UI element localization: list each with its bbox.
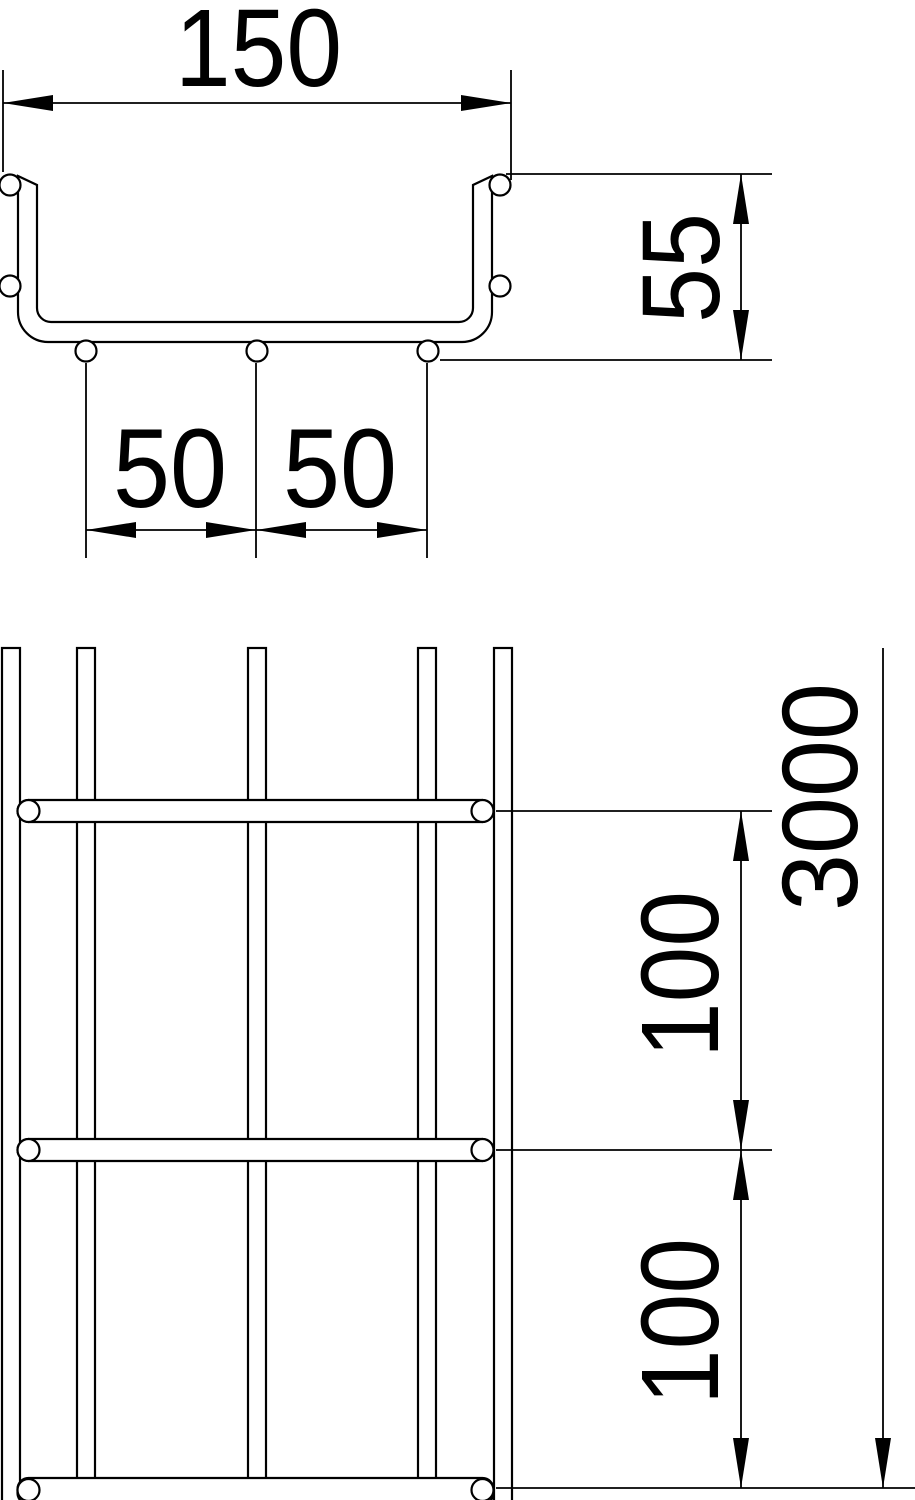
bottom-wire-right <box>418 341 439 362</box>
dimension-rung-pitch-upper-100: 100 <box>496 811 772 1150</box>
rim-wire-right <box>490 175 511 196</box>
side-wire-left <box>0 276 21 297</box>
bottom-wire-left <box>76 341 97 362</box>
plan-view: 100 100 3000 <box>2 648 915 1500</box>
arrowhead-left <box>3 95 53 111</box>
spacing-label-right: 50 <box>283 406 397 531</box>
rung-pitch-upper-label: 100 <box>619 891 742 1058</box>
longitudinal-wire-5 <box>494 648 512 1500</box>
arrowhead-up <box>733 1150 749 1200</box>
dimension-rung-pitch-lower-100: 100 <box>496 1150 915 1488</box>
dimension-wire-spacing-50-50: 50 50 <box>86 363 427 558</box>
longitudinal-wire-1 <box>2 648 20 1500</box>
spacing-label-left: 50 <box>113 406 227 531</box>
longitudinal-wire-2 <box>77 648 95 1500</box>
dimension-width-150: 150 <box>3 0 511 180</box>
arrowhead-down <box>733 1100 749 1150</box>
arrowhead-up <box>733 811 749 861</box>
u-channel-profile <box>18 176 492 342</box>
cross-section-view: 150 55 50 50 <box>0 0 772 558</box>
width-label: 150 <box>175 0 342 110</box>
side-wire-right <box>490 276 511 297</box>
arrowhead-down <box>875 1438 891 1488</box>
cross-rung-2 <box>18 1139 494 1161</box>
mesh-tray-drawing: 150 55 50 50 <box>0 0 915 1500</box>
arrowhead-down <box>733 1438 749 1488</box>
arrowhead-right <box>461 95 511 111</box>
cross-rung-1 <box>18 800 494 822</box>
length-label: 3000 <box>759 683 880 911</box>
rim-wire-left <box>0 175 21 196</box>
longitudinal-wire-3 <box>248 648 266 1500</box>
longitudinal-wire-4 <box>418 648 436 1500</box>
bottom-wire-center <box>247 341 268 362</box>
height-label: 55 <box>620 213 743 323</box>
dimension-length-3000: 3000 <box>759 648 891 1488</box>
cross-rung-3 <box>18 1478 494 1500</box>
technical-drawing-page: 150 55 50 50 <box>0 0 915 1500</box>
rung-pitch-lower-label: 100 <box>619 1238 742 1405</box>
